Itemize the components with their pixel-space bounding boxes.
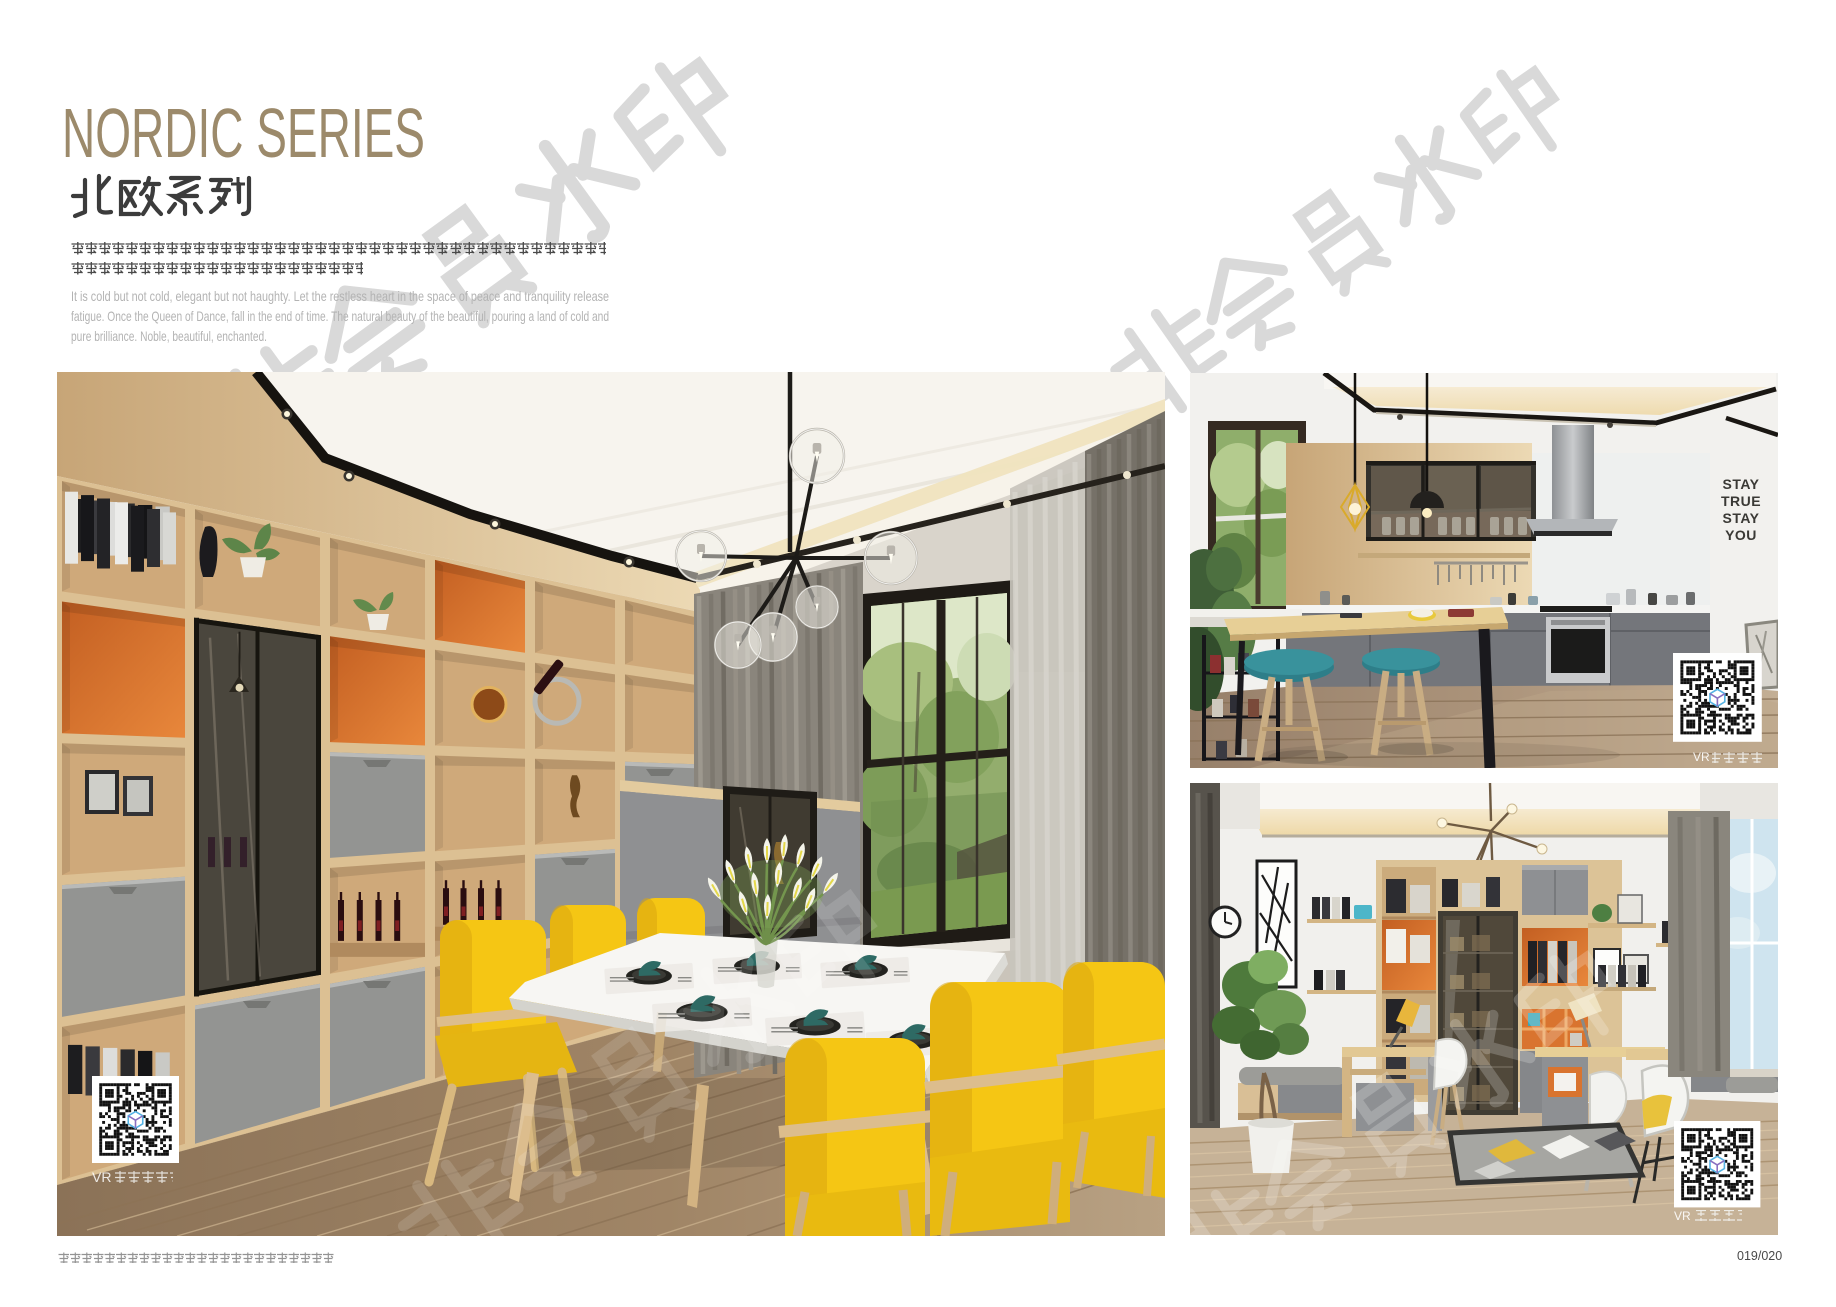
svg-text:fatigue. Once the Queen of Dan: fatigue. Once the Queen of Dance, fall i… [71,308,609,324]
svg-text:VR: VR [1693,750,1710,764]
svg-text:pure brilliance. Noble, beauti: pure brilliance. Noble, beautiful, encha… [71,328,267,344]
svg-text:STAY: STAY [1722,476,1759,492]
svg-text:It is cold but not cold, elega: It is cold but not cold, elegant but not… [71,288,609,304]
svg-text:VR: VR [92,1169,111,1185]
svg-text:TRUE: TRUE [1721,493,1761,509]
svg-text:NORDIC SERIES: NORDIC SERIES [62,94,425,172]
svg-text:019/020: 019/020 [1737,1249,1782,1263]
svg-text:YOU: YOU [1725,527,1757,543]
svg-text:VR: VR [1674,1209,1691,1223]
svg-text:STAY: STAY [1722,510,1759,526]
